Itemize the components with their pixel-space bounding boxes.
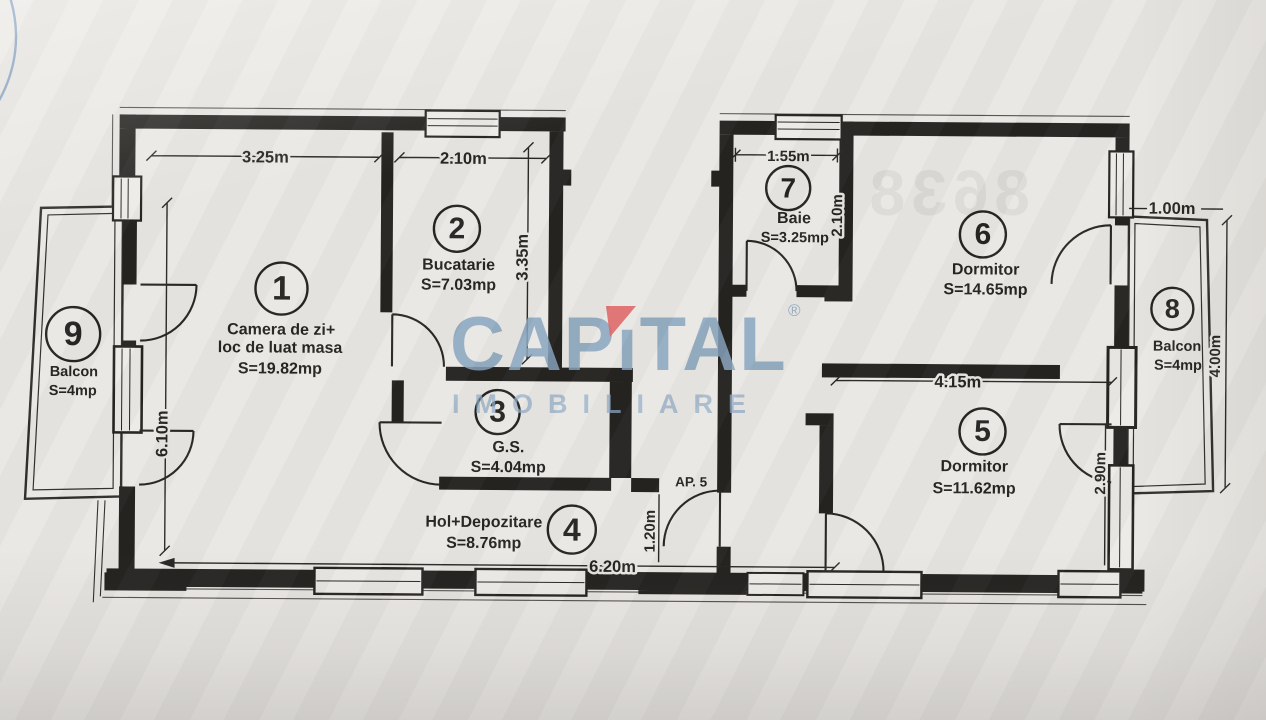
dim-balcony8-width: 1.00m: [1149, 200, 1196, 218]
room-2-label: 2 Bucatarie S=7.03mp: [421, 206, 497, 295]
room-3-name: G.S.: [492, 439, 524, 456]
balcony-8-inner-line: [1133, 224, 1207, 487]
window-right-bedroom6: [1109, 151, 1133, 217]
room-7-name: Baie: [777, 210, 811, 227]
room-7-label: 7 Baie S=3.25mp: [761, 166, 830, 246]
room-8-number: 8: [1165, 294, 1180, 324]
room-8-name: Balcon: [1153, 339, 1201, 355]
room-6-area: S=14.65mp: [943, 281, 1027, 299]
room-2-area: S=7.03mp: [421, 277, 496, 295]
bleed-digits: 8638: [864, 157, 1030, 229]
room-3-area: S=4.04mp: [471, 459, 546, 477]
door-gs: [379, 422, 441, 484]
room-1-label: 1 Camera de zi+ loc de luat masa S=19.82…: [218, 262, 343, 378]
balcony-9-foot-lines: [93, 500, 105, 602]
room-4-label: 4 Hol+Depozitare S=8.76mp: [425, 505, 596, 554]
door-bath: [746, 241, 796, 291]
room-5-name: Dormitor: [940, 458, 1008, 475]
door-bedroom5: [826, 513, 884, 571]
room-7-number: 7: [780, 173, 796, 204]
dim-entry-nook: 1.20m: [642, 510, 659, 553]
room-8-label: 8 Balcon S=4mp: [1151, 288, 1203, 374]
dim-living-width: 3.25m: [242, 148, 289, 166]
dim-living-height: 6.10m: [153, 410, 171, 457]
room-9-name: Balcon: [50, 364, 98, 380]
window-left-upper: [113, 176, 141, 220]
room-1-area: S=19.82mp: [238, 360, 322, 378]
unit-label: AP. 5: [675, 474, 708, 489]
pen-stroke-arc: [0, 0, 16, 112]
door-living-balcony9-upper: [140, 285, 196, 341]
window-top-living: [426, 111, 500, 138]
door-bedroom6-balcony8: [1052, 225, 1111, 284]
watermark-brand-right: TAL: [640, 302, 788, 387]
window-left-living: [113, 346, 142, 432]
room-6-name: Dormitor: [952, 261, 1020, 278]
room-2-name: Bucatarie: [422, 257, 495, 275]
room-9-number: 9: [64, 315, 83, 353]
room-8-area: S=4mp: [1154, 358, 1202, 374]
dim-bedroom5-height: 2.90m: [1092, 452, 1109, 495]
window-bottom-5: [1058, 571, 1120, 597]
room-1-number: 1: [272, 269, 291, 307]
floor-plan-svg: 8638: [0, 0, 1266, 720]
watermark-brand-left: CAP: [450, 302, 616, 387]
room-5-label: 5 Dormitor S=11.62mp: [932, 408, 1016, 498]
door-entrance-ap5: [664, 490, 720, 546]
dimension-arrow: [159, 558, 175, 568]
room-5-area: S=11.62mp: [932, 480, 1016, 498]
room-9-label: 9 Balcon S=4mp: [46, 307, 101, 399]
balcony-8-outline: [1127, 216, 1215, 494]
watermark: CAPıTAL ® IMOBILIARE: [450, 301, 801, 419]
dim-bath-width: 1.55m: [767, 148, 810, 165]
screenshot-root: { "watermark": { "brand_left": "CAP", "b…: [0, 0, 1266, 720]
window-right-bedroom5: [1109, 465, 1134, 569]
dim-bedroom5-width: 4.15m: [934, 373, 981, 391]
room-1-name-line2: loc de luat masa: [218, 339, 343, 357]
dim-kitchen-height: 3.35m: [514, 234, 532, 281]
window-bottom-1: [314, 568, 422, 595]
door-kitchen: [392, 314, 444, 366]
room-1-name: Camera de zi+: [227, 321, 335, 339]
room-4-area: S=8.76mp: [446, 535, 521, 553]
balcony8-door-window: [1108, 347, 1137, 427]
window-top-bedroom6: [776, 115, 842, 139]
room-9-area: S=4mp: [49, 383, 97, 399]
dim-bath-height: 2.10m: [829, 194, 846, 237]
dim-balcony8-height: 4.00m: [1207, 335, 1224, 378]
room-4-number: 4: [563, 512, 581, 548]
window-bottom-4: [807, 571, 921, 598]
watermark-subtitle: IMOBILIARE: [452, 389, 761, 419]
room-5-number: 5: [974, 415, 991, 448]
room-6-number: 6: [974, 218, 991, 251]
dim-bottom-width: 6.20m: [589, 558, 636, 576]
window-bottom-2: [475, 569, 586, 596]
floorplan-photo: 8638: [0, 0, 1266, 720]
dim-kitchen-width: 2.10m: [440, 150, 487, 168]
room-4-name: Hol+Depozitare: [425, 514, 542, 532]
watermark-registered: ®: [788, 301, 801, 320]
room-7-area: S=3.25mp: [761, 230, 829, 246]
room-2-number: 2: [448, 212, 465, 245]
window-bottom-3: [747, 573, 803, 595]
